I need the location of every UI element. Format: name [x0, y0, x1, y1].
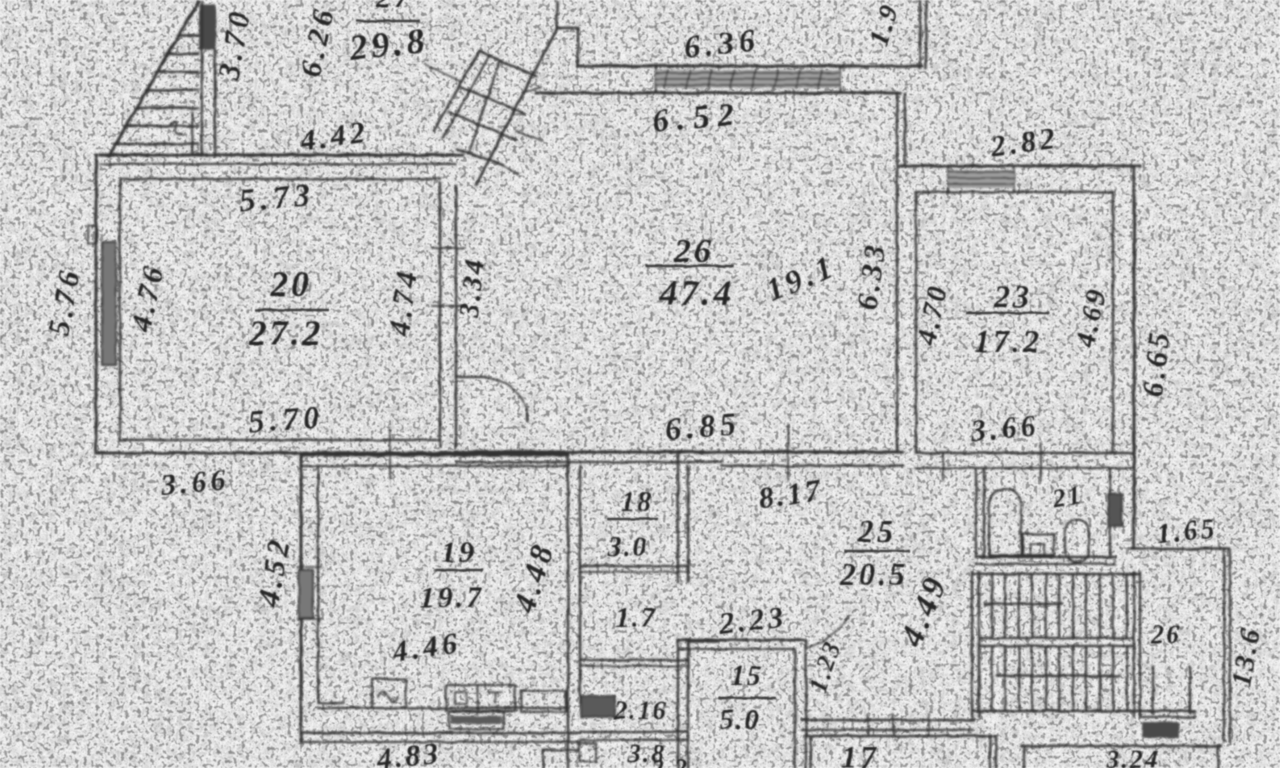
svg-text:5.0: 5.0	[720, 705, 761, 736]
svg-text:2.2: 2.2	[650, 754, 690, 768]
svg-text:1.7: 1.7	[616, 603, 657, 634]
svg-text:23: 23	[993, 278, 1032, 314]
svg-text:3.0: 3.0	[607, 532, 649, 563]
svg-text:47.4: 47.4	[659, 273, 735, 313]
svg-text:27: 27	[375, 0, 412, 14]
svg-text:26: 26	[1150, 620, 1181, 649]
svg-text:26: 26	[673, 233, 714, 270]
svg-text:15: 15	[731, 661, 763, 692]
svg-text:6.85: 6.85	[664, 405, 743, 447]
svg-text:17: 17	[841, 739, 879, 768]
svg-text:21: 21	[1049, 480, 1085, 514]
svg-text:20: 20	[269, 264, 312, 304]
svg-text:3.66: 3.66	[969, 409, 1041, 448]
svg-text:27.2: 27.2	[248, 313, 324, 353]
svg-text:29.8: 29.8	[346, 20, 430, 68]
svg-text:5.73: 5.73	[238, 176, 317, 218]
svg-text:5.70: 5.70	[247, 398, 325, 439]
svg-text:20.5: 20.5	[839, 556, 908, 592]
svg-text:19.7: 19.7	[420, 581, 485, 614]
svg-text:2.16: 2.16	[613, 696, 668, 725]
svg-text:18: 18	[621, 487, 653, 518]
svg-text:25: 25	[857, 513, 896, 549]
svg-text:3.34: 3.34	[454, 255, 491, 320]
svg-text:19: 19	[441, 536, 477, 569]
svg-text:3.66: 3.66	[159, 463, 231, 502]
svg-text:17.2: 17.2	[974, 323, 1042, 359]
svg-text:1.65: 1.65	[1155, 513, 1219, 550]
svg-text:3.24: 3.24	[1105, 745, 1160, 768]
